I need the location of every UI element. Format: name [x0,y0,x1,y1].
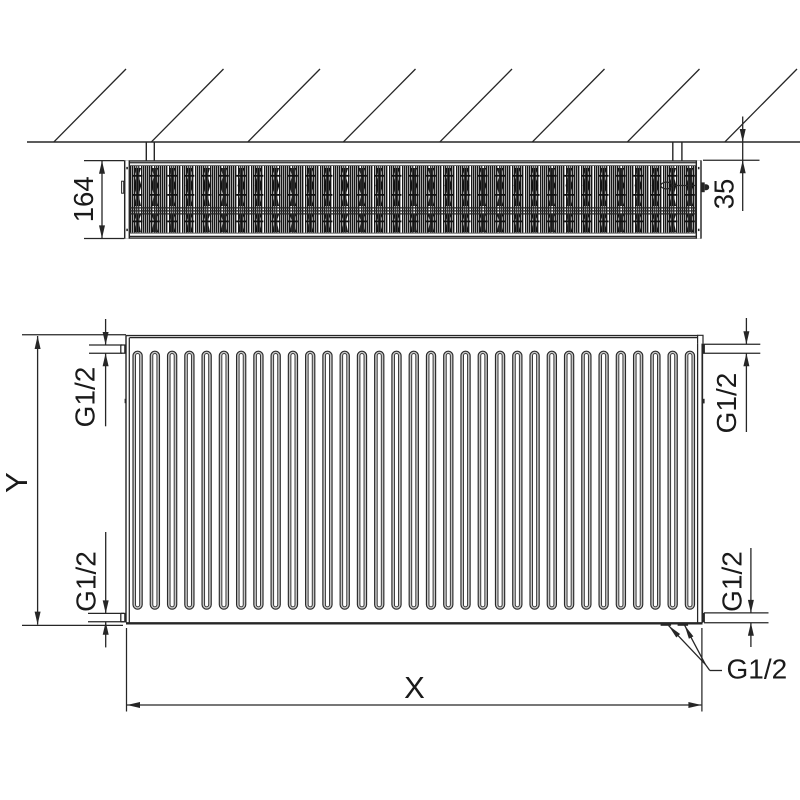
svg-text:35: 35 [708,179,739,210]
svg-text:G1/2: G1/2 [717,551,748,612]
svg-text:G1/2: G1/2 [727,653,788,684]
svg-text:G1/2: G1/2 [711,373,742,434]
svg-text:X: X [404,670,425,705]
svg-text:G1/2: G1/2 [71,551,102,612]
svg-text:Y: Y [0,472,34,493]
svg-text:164: 164 [68,176,99,222]
svg-text:G1/2: G1/2 [70,367,101,428]
